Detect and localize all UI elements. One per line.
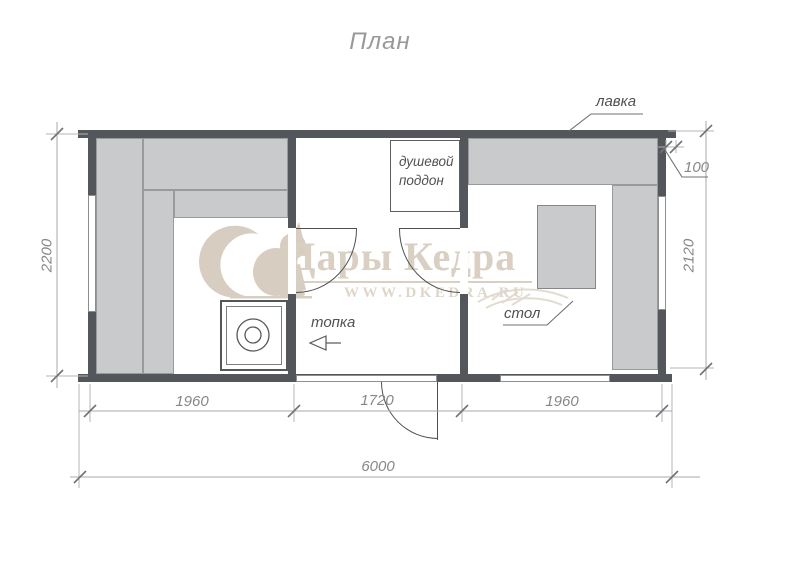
- dim-segment-3: 1960: [532, 393, 592, 410]
- wall-top: [78, 130, 676, 138]
- dim-right-height: 2120: [681, 231, 698, 281]
- sauna-bench-top: [143, 138, 288, 190]
- shower-tray: душевой поддон: [390, 140, 460, 212]
- dim-segment-2: 1720: [347, 392, 407, 409]
- stove: [220, 300, 288, 371]
- door-opening-left-partition: [288, 228, 296, 294]
- entrance-threshold: [296, 375, 437, 382]
- bench-label: лавка: [596, 93, 636, 110]
- window-left-wall: [88, 195, 96, 312]
- door-leaf-left-partition: [296, 228, 357, 229]
- table: [537, 205, 596, 289]
- stove-inner-frame: [226, 306, 282, 365]
- sauna-bench-left: [96, 138, 143, 374]
- door-leaf-entrance: [437, 382, 438, 440]
- door-leaf-right-partition: [399, 228, 460, 229]
- sauna-bench-left-step: [143, 190, 174, 374]
- dim-total-width: 6000: [348, 458, 408, 475]
- firebox-label: топка: [311, 314, 355, 331]
- dim-overhang: 100: [684, 159, 709, 176]
- window-bottom-wall: [500, 375, 610, 382]
- rest-room-bench-top: [468, 138, 658, 185]
- dim-segment-1: 1960: [162, 393, 222, 410]
- sauna-bench-top-step: [174, 190, 288, 218]
- table-label: стол: [504, 305, 540, 322]
- window-right-wall: [658, 196, 666, 310]
- rest-room-bench-right: [612, 185, 658, 370]
- shower-tray-label: душевой поддон: [399, 153, 457, 191]
- floor-plan: План Дары Кедра WWW.DKEDRA.RU: [0, 0, 800, 565]
- dim-left-height: 2200: [39, 231, 56, 281]
- page-title: План: [300, 28, 460, 56]
- door-opening-right-partition: [460, 228, 468, 294]
